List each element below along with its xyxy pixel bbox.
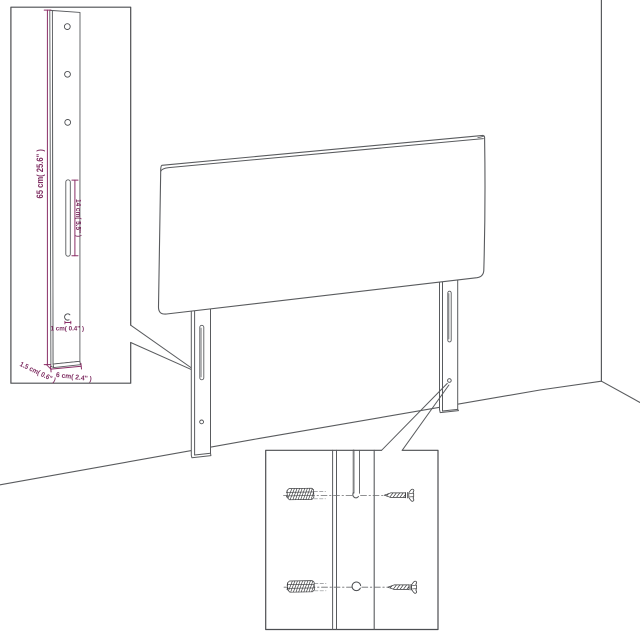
svg-text:65 cm( 25.6" ): 65 cm( 25.6" ) [35,149,45,199]
svg-text:1 cm( 0.4" ): 1 cm( 0.4" ) [51,326,85,333]
svg-text:14 cm( 5.5" ): 14 cm( 5.5" ) [74,199,81,237]
